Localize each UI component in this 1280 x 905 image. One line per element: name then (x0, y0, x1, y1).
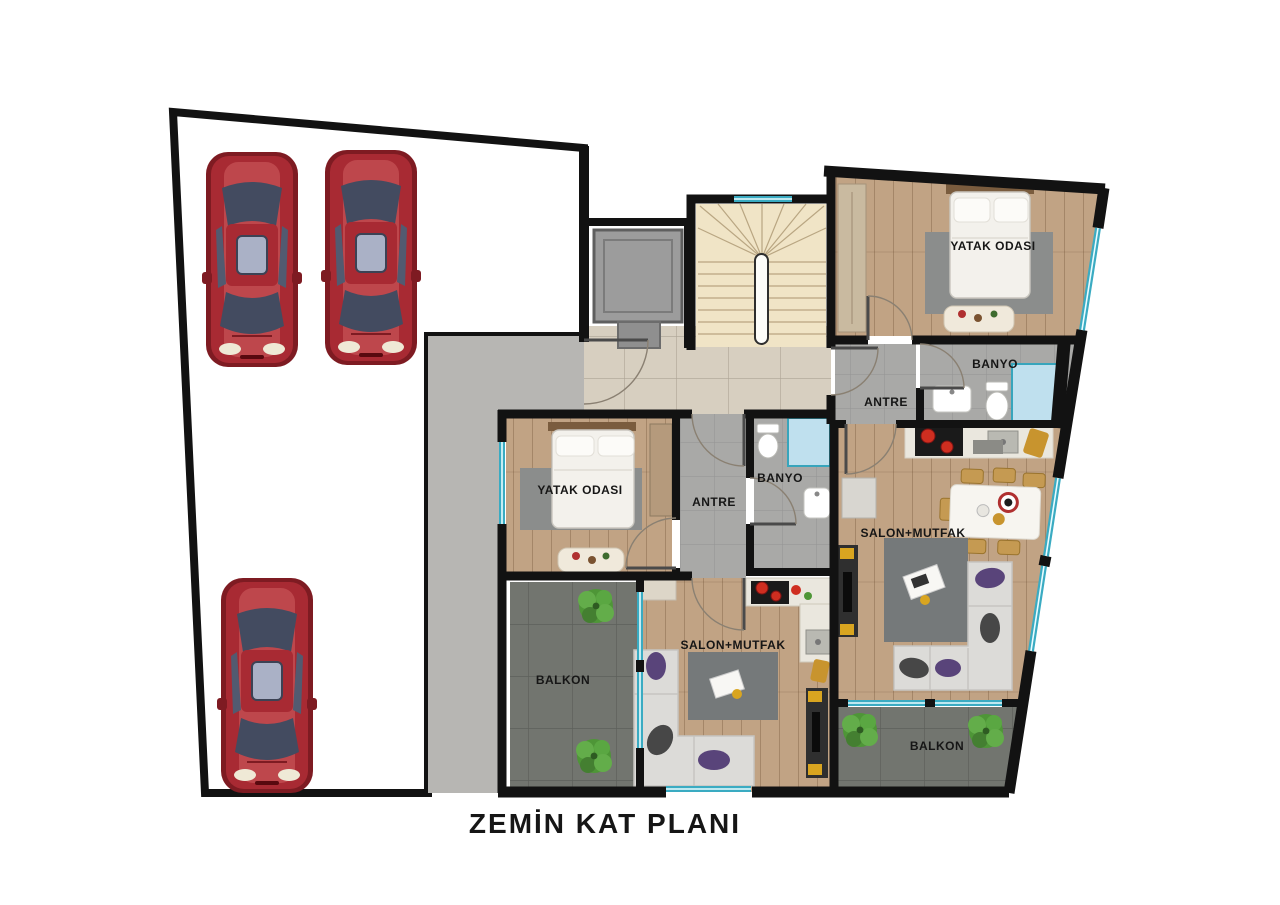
toilet-tank (986, 382, 1008, 391)
toilet-tank (757, 424, 779, 433)
pot (921, 429, 935, 443)
common-area (584, 146, 831, 414)
kettle (791, 585, 801, 595)
mid-balcony-label: BALKON (536, 673, 590, 687)
pillow (954, 198, 990, 222)
mid-bathroom-label: BANYO (757, 471, 803, 485)
pot (941, 441, 953, 453)
balcony-plant (578, 589, 614, 623)
right-hallway-label: ANTRE (864, 395, 908, 409)
apartment-middle: YATAK ODASI ANTRE BANYO SALON+MUTFAK BAL… (498, 410, 836, 793)
cushion (646, 652, 666, 680)
pot (756, 582, 768, 594)
parked-car-1 (202, 152, 302, 367)
plate (977, 504, 989, 516)
balcony-plant (576, 739, 612, 773)
right-bathroom-label: BANYO (972, 357, 1018, 371)
chair (961, 469, 983, 484)
right-living-label: SALON+MUTFAK (861, 526, 966, 540)
floor-plan-canvas: YATAK ODASI ANTRE BANYO SALON+MUTFAK BAL… (0, 0, 1280, 905)
mid-balcony-floor (510, 582, 640, 792)
shower (1012, 364, 1058, 424)
chair (1023, 473, 1045, 488)
elevator-cab (594, 230, 682, 322)
parked-car-3 (217, 578, 317, 793)
parked-car-2 (321, 150, 421, 365)
wardrobe (650, 424, 672, 516)
apartment-right: YATAK ODASI BANYO ANTRE SALON+MUTFAK BAL… (824, 169, 1105, 793)
cabinet (842, 478, 876, 518)
right-hallway-floor (835, 344, 916, 424)
chair (998, 540, 1020, 555)
balcony-plant (842, 713, 878, 747)
throw-blanket (980, 613, 1000, 643)
toilet (986, 392, 1008, 420)
right-bedroom-label: YATAK ODASI (950, 239, 1035, 253)
stair-handrail (755, 254, 768, 344)
sideboard (973, 440, 1003, 454)
mid-bedroom-label: YATAK ODASI (537, 483, 622, 497)
pillow (994, 198, 1028, 222)
mid-hallway-label: ANTRE (692, 495, 736, 509)
cabinet (642, 580, 676, 600)
balcony-plant (968, 714, 1004, 748)
mid-living-label: SALON+MUTFAK (681, 638, 786, 652)
elevator-threshold (618, 322, 660, 348)
tv (812, 712, 820, 752)
pillow (556, 436, 594, 456)
pillow (598, 436, 634, 456)
cushion (935, 659, 961, 677)
floor-plan-page: YATAK ODASI ANTRE BANYO SALON+MUTFAK BAL… (0, 0, 1280, 905)
pot (771, 591, 781, 601)
toilet (758, 434, 778, 458)
right-balcony-label: BALKON (910, 739, 964, 753)
cushion (698, 750, 730, 770)
plant-pot (804, 592, 812, 600)
tv (843, 572, 852, 612)
staircase (691, 199, 831, 350)
chair (993, 468, 1015, 483)
plan-title: ZEMİN KAT PLANI (469, 808, 741, 839)
shower (788, 418, 830, 466)
